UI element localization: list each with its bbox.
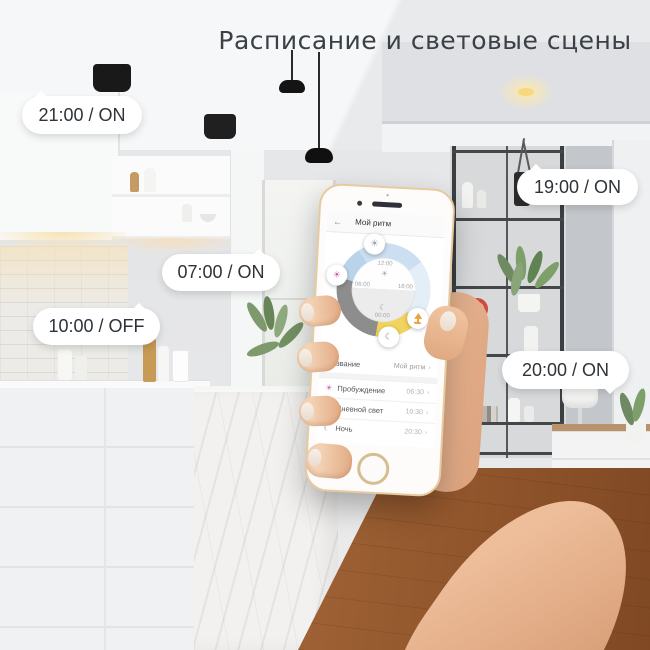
sideboard-drawer-line <box>552 458 650 460</box>
shelf-board <box>452 218 564 221</box>
schedule-bubble: 20:00 / ON <box>502 351 629 389</box>
white-vase <box>508 398 520 422</box>
schedule-bubble: 07:00 / ON <box>162 254 280 291</box>
ceiling-spotlight <box>204 114 236 139</box>
finger <box>305 442 354 480</box>
lamp-icon <box>414 322 421 324</box>
schedule-time-label: 07:00 / ON <box>177 262 264 283</box>
pendant-cord <box>318 52 320 150</box>
night-scene-button[interactable]: ☾ <box>378 326 400 348</box>
cabinet-gap <box>104 388 106 650</box>
recessed-light <box>518 88 534 96</box>
schedule-time-label: 21:00 / ON <box>38 105 125 126</box>
ceiling-spotlight <box>93 64 131 92</box>
scene-time: 06:30 <box>406 388 424 396</box>
wooden-vase <box>130 172 139 192</box>
schedule-time-label: 19:00 / ON <box>534 177 621 198</box>
white-vase <box>477 190 486 208</box>
table-lamp-stem <box>578 408 582 424</box>
scene-time: 20:30 <box>404 428 422 436</box>
shelf <box>112 194 232 197</box>
scene-label: Ночь <box>335 424 405 437</box>
white-vase <box>144 168 156 192</box>
pendant-lamp <box>305 148 333 163</box>
moon-icon: ☾ <box>384 331 393 342</box>
sun-icon: ☀ <box>352 267 416 279</box>
glass-jar <box>172 350 189 382</box>
white-vase <box>462 182 473 208</box>
white-vase <box>524 406 534 422</box>
chevron-right-icon: › <box>428 364 431 371</box>
promo-scene: ← Мой ритм 12:00 ☀ 06:00 18:00 ☾ 00:00 ☀… <box>0 0 650 650</box>
bowl <box>200 214 216 222</box>
shelf-board <box>452 286 564 289</box>
under-cabinet-light <box>0 232 126 252</box>
front-camera <box>357 201 362 206</box>
sunrise-icon: ☀ <box>333 269 342 280</box>
white-vase <box>182 204 192 222</box>
evening-scene-button[interactable] <box>407 307 429 329</box>
open-shelf-unit <box>112 156 232 240</box>
scene-label: Пробуждение <box>337 384 407 397</box>
chevron-right-icon: › <box>425 429 428 436</box>
sunrise-icon: ☀ <box>325 383 337 393</box>
sensor-dot <box>387 194 389 196</box>
scene-label: Дневной свет <box>336 404 406 417</box>
sun-icon: ☀ <box>370 238 380 249</box>
schedule-bubble: 19:00 / ON <box>517 169 638 205</box>
back-arrow-icon[interactable]: ← <box>333 216 343 226</box>
finger <box>298 395 341 426</box>
schedule-bubble: 10:00 / OFF <box>33 308 160 345</box>
shelf-board <box>452 150 564 153</box>
page-title: Расписание и световые сцены <box>200 26 650 55</box>
chevron-right-icon: › <box>426 410 429 417</box>
schedule-time-label: 10:00 / OFF <box>48 316 144 337</box>
app-title: Мой ритм <box>355 218 391 229</box>
canister <box>75 356 87 380</box>
white-bottle <box>158 346 169 382</box>
chevron-right-icon: › <box>427 390 430 397</box>
dial-label-evening: 18:00 <box>398 284 413 291</box>
home-button[interactable] <box>356 452 390 486</box>
earpiece-speaker <box>372 201 402 208</box>
white-vase <box>524 326 538 354</box>
scene-time: 10:30 <box>405 408 423 416</box>
canister <box>58 350 72 380</box>
schedule-bubble: 21:00 / ON <box>22 96 142 134</box>
schedule-time-label: 20:00 / ON <box>522 360 609 381</box>
plant-pot <box>518 294 540 312</box>
name-value: Мой ритм <box>394 362 426 371</box>
dial-label-morning: 06:00 <box>355 282 370 289</box>
under-shelf-light <box>112 238 232 254</box>
pendant-lamp <box>279 80 305 93</box>
